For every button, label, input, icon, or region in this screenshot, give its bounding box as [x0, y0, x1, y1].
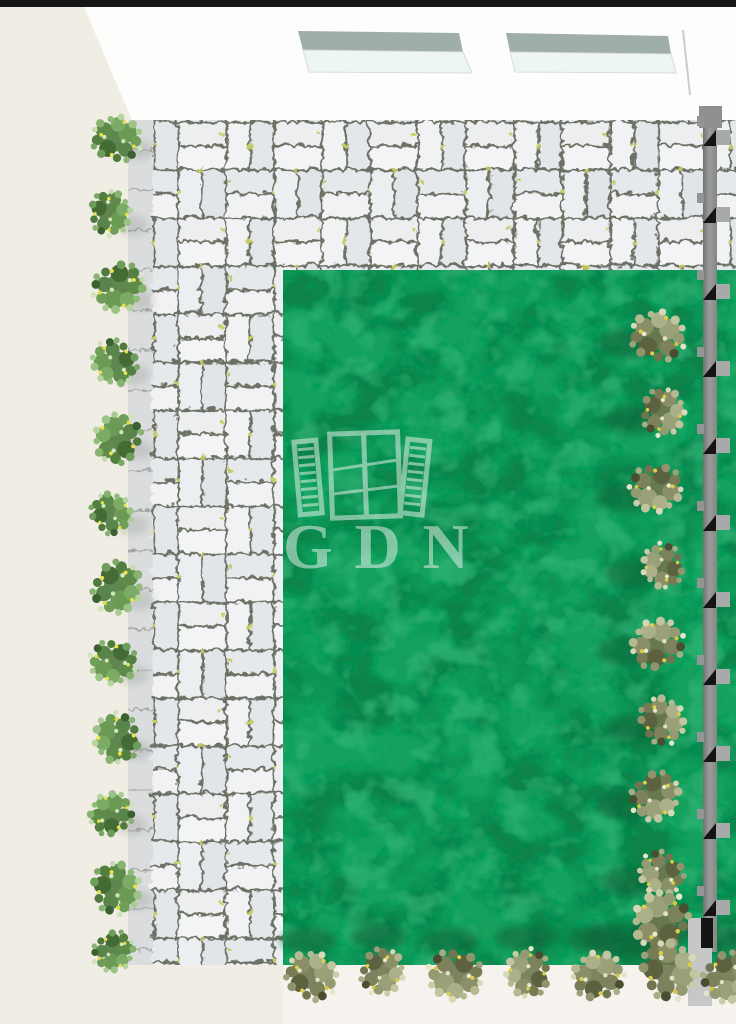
skylight-right-glass [510, 52, 676, 73]
bush [629, 308, 686, 362]
garden-render-canvas: GDN [0, 0, 736, 1024]
skylight-left-frame-band [298, 31, 463, 52]
fence-foot-shadow [701, 918, 713, 948]
skylight-left [298, 31, 472, 73]
garden-render: GDN [0, 0, 736, 1024]
skylight-right [506, 33, 676, 73]
skylight-left-glass [303, 50, 472, 73]
skylight-right-frame-band [506, 33, 671, 54]
bush [91, 114, 143, 164]
top-edge-bar [0, 0, 736, 7]
watermark-text: GDN [283, 511, 491, 582]
